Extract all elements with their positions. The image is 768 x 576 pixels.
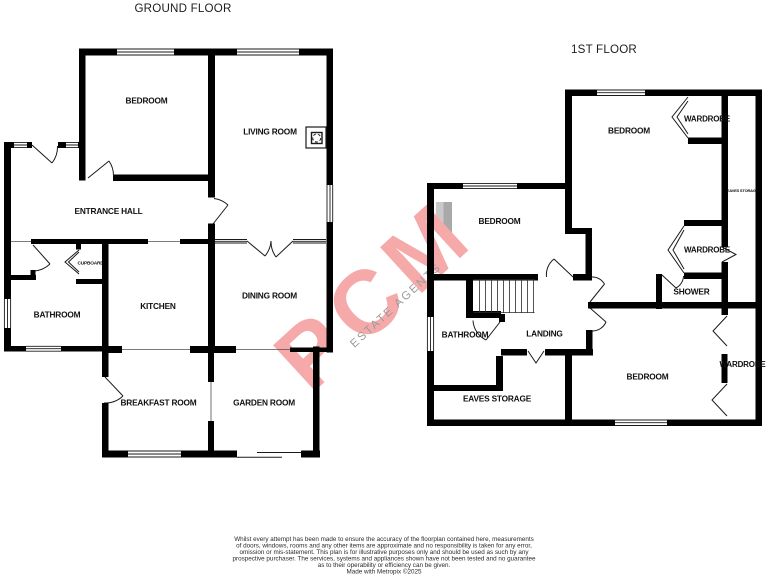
svg-text:1ST FLOOR: 1ST FLOOR xyxy=(571,43,637,56)
svg-text:BREAKFAST ROOM: BREAKFAST ROOM xyxy=(120,398,196,408)
svg-text:LIVING ROOM: LIVING ROOM xyxy=(243,127,297,137)
svg-text:LANDING: LANDING xyxy=(526,329,562,339)
svg-text:DINING ROOM: DINING ROOM xyxy=(242,291,297,301)
svg-text:GROUND FLOOR: GROUND FLOOR xyxy=(134,2,231,15)
svg-text:EAVES STORAGE: EAVES STORAGE xyxy=(463,394,532,404)
svg-text:WARDROBE: WARDROBE xyxy=(684,115,731,124)
svg-text:WARDROBE: WARDROBE xyxy=(720,360,767,369)
svg-text:KITCHEN: KITCHEN xyxy=(140,301,176,311)
svg-text:ENTRANCE HALL: ENTRANCE HALL xyxy=(75,206,143,216)
svg-text:BEDROOM: BEDROOM xyxy=(608,126,650,136)
svg-text:BEDROOM: BEDROOM xyxy=(627,372,669,382)
svg-text:Made with Metropix ©2025: Made with Metropix ©2025 xyxy=(347,568,422,576)
svg-text:CUPBOARD: CUPBOARD xyxy=(77,261,104,267)
svg-text:SHOWER: SHOWER xyxy=(673,287,709,297)
svg-text:BEDROOM: BEDROOM xyxy=(479,216,521,226)
svg-text:BATHROOM: BATHROOM xyxy=(34,310,81,320)
svg-text:EAVES STORAGE: EAVES STORAGE xyxy=(727,188,759,193)
svg-text:BATHROOM: BATHROOM xyxy=(442,330,489,340)
svg-text:WARDROBE: WARDROBE xyxy=(684,246,731,255)
svg-text:BEDROOM: BEDROOM xyxy=(126,96,168,106)
svg-text:GARDEN ROOM: GARDEN ROOM xyxy=(233,398,295,408)
